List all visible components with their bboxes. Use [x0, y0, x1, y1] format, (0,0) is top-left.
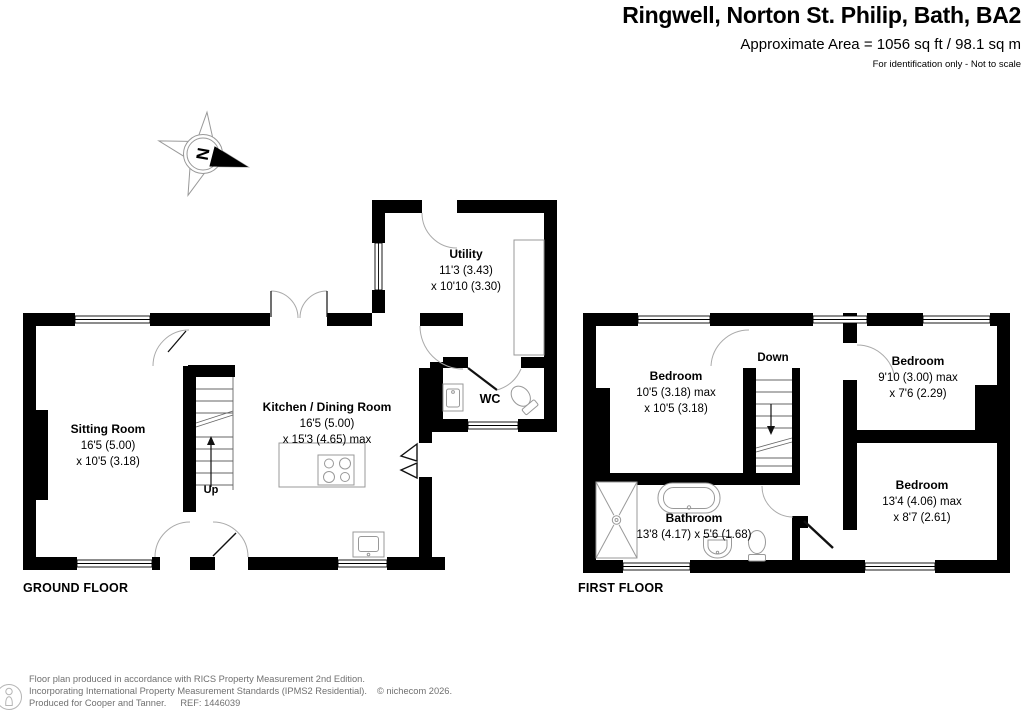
bifold-door	[401, 444, 417, 478]
window	[638, 316, 710, 323]
disclaimer: For identification only - Not to scale	[622, 59, 1021, 70]
bedroom-door-leaf	[804, 521, 833, 548]
reference-number: REF: 1446039	[180, 698, 240, 708]
ground-floor-label: GROUND FLOOR	[23, 581, 128, 595]
room-label-bedroom-1: Bedroom 10'5 (3.18) max x 10'5 (3.18)	[636, 368, 716, 418]
hob-icon	[318, 455, 354, 485]
up-arrow-icon	[207, 436, 215, 487]
footer-line-3: Produced for Cooper and Tanner.REF: 1446…	[29, 697, 452, 709]
utility-recess	[514, 240, 544, 355]
door-arc	[762, 486, 793, 517]
room-label-wc: WC	[480, 392, 501, 406]
ground-floor-stairs	[196, 377, 233, 490]
window	[923, 316, 990, 323]
room-label-bedroom-2: Bedroom 9'10 (3.00) max x 7'6 (2.29)	[878, 353, 958, 403]
door-arc	[711, 330, 749, 366]
first-floor-stairs	[756, 380, 792, 466]
kitchen-door	[213, 522, 248, 557]
floorplan-drawing: N	[0, 0, 1024, 715]
window	[75, 316, 150, 323]
window	[77, 560, 152, 567]
wc-basin-icon	[443, 384, 463, 411]
first-floor-label: FIRST FLOOR	[578, 581, 664, 595]
wc-door	[468, 368, 521, 390]
stairs-down-label: Down	[757, 352, 788, 364]
room-label-bedroom-3: Bedroom 13'4 (4.06) max x 8'7 (2.61)	[882, 477, 962, 527]
sitting-room-door	[153, 330, 189, 366]
door-arc	[422, 213, 457, 248]
double-door	[271, 291, 327, 318]
stairs-up-label: Up	[204, 484, 219, 496]
window	[468, 422, 518, 429]
shower-icon	[596, 482, 637, 558]
bathtub-icon	[658, 483, 720, 513]
copyright: © nichecom 2026.	[377, 686, 452, 696]
kitchen-sink-icon	[353, 532, 384, 557]
floorplan-page: N	[0, 0, 1024, 715]
window	[375, 243, 382, 290]
window	[338, 560, 387, 567]
window	[865, 563, 935, 570]
door-arc	[155, 522, 190, 557]
approximate-area: Approximate Area = 1056 sq ft / 98.1 sq …	[622, 36, 1021, 53]
header: Ringwell, Norton St. Philip, Bath, BA2 A…	[622, 2, 1021, 70]
window	[623, 563, 690, 570]
window	[813, 316, 867, 323]
footer-line-2: Incorporating International Property Mea…	[29, 685, 452, 697]
room-label-bathroom: Bathroom 13'8 (4.17) x 5'6 (1.68)	[637, 510, 752, 543]
room-label-sitting-room: Sitting Room 16'5 (5.00) x 10'5 (3.18)	[71, 421, 146, 471]
footer: Floor plan produced in accordance with R…	[29, 673, 452, 709]
kitchen-island	[279, 443, 365, 487]
compass-north-icon: N	[159, 112, 248, 195]
footer-line-1: Floor plan produced in accordance with R…	[29, 673, 452, 685]
room-label-kitchen-dining: Kitchen / Dining Room 16'5 (5.00) x 15'3…	[263, 399, 392, 449]
down-arrow-icon	[767, 404, 775, 435]
nichecom-logo-icon	[0, 685, 22, 710]
wc-toilet-icon	[507, 382, 539, 415]
page-title: Ringwell, Norton St. Philip, Bath, BA2	[622, 2, 1021, 29]
room-label-utility: Utility 11'3 (3.43) x 10'10 (3.30)	[431, 246, 501, 296]
